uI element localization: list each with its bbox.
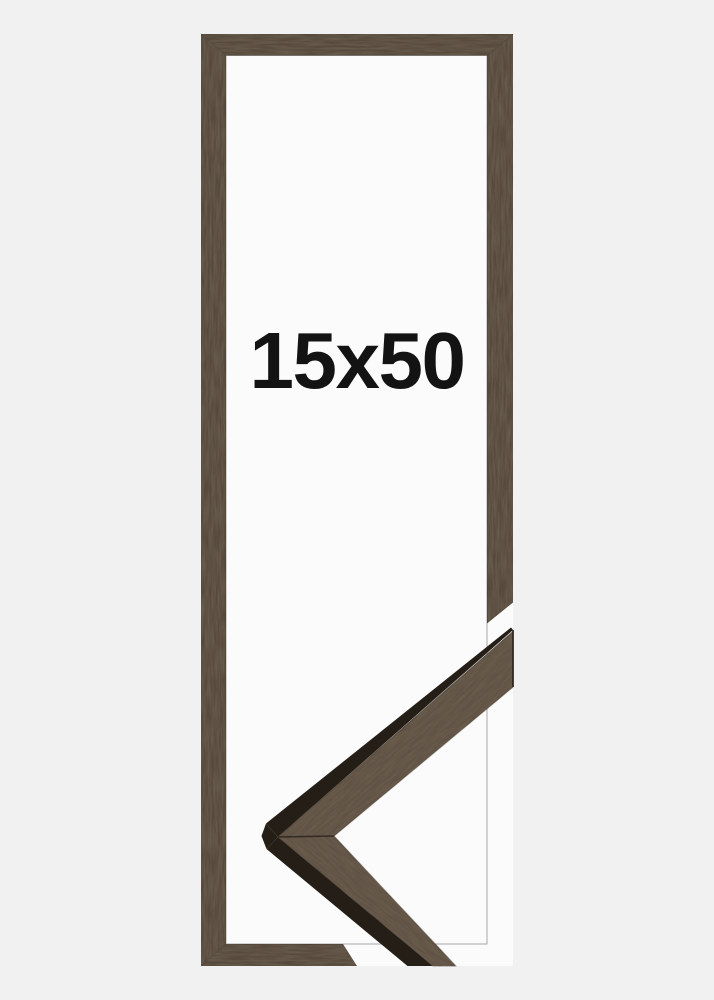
size-label: 15x50 xyxy=(0,321,714,401)
corner-detail-miter-seam xyxy=(278,836,334,837)
frame-left-bar xyxy=(201,34,226,966)
frame-bottom-bar xyxy=(201,944,357,966)
frame-product-image: 15x50 xyxy=(0,0,714,1000)
frame-top-bar xyxy=(201,34,513,56)
frame-graphic xyxy=(0,0,714,1000)
